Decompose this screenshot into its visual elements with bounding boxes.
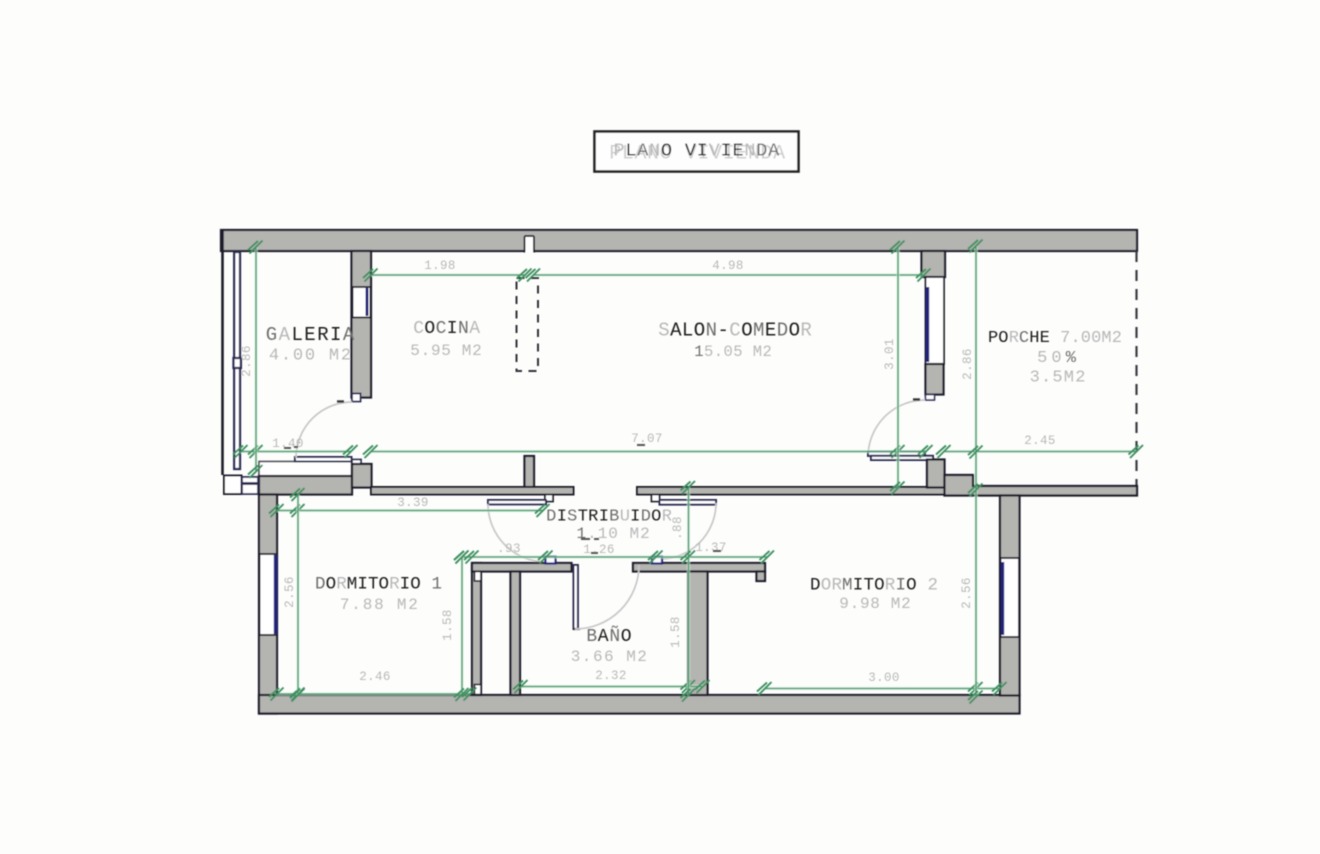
svg-text:D: D: [315, 575, 326, 595]
svg-text:D: D: [777, 320, 788, 342]
svg-text:R: R: [1009, 329, 1019, 348]
svg-text:M: M: [891, 595, 901, 613]
svg-text:R: R: [831, 576, 842, 596]
svg-text:O: O: [326, 575, 337, 595]
svg-text:A: A: [598, 627, 609, 647]
svg-text:.: .: [1070, 329, 1080, 348]
svg-text:9: 9: [839, 595, 849, 613]
svg-text:D: D: [641, 508, 651, 527]
svg-text:.: .: [421, 342, 431, 360]
svg-text:2: 2: [640, 525, 650, 543]
svg-text:I: I: [895, 576, 906, 596]
svg-text:0: 0: [293, 347, 303, 366]
svg-text:M: M: [753, 320, 764, 342]
svg-text:H: H: [1029, 329, 1039, 348]
svg-text:P: P: [988, 329, 998, 348]
svg-text:A: A: [279, 324, 291, 346]
svg-text:O: O: [694, 320, 705, 342]
svg-text:U: U: [620, 508, 630, 527]
svg-text:O: O: [661, 141, 672, 162]
svg-text:M: M: [1064, 369, 1074, 388]
svg-text:O: O: [410, 575, 421, 595]
svg-text:-: -: [717, 320, 728, 342]
svg-text:O: O: [424, 319, 435, 339]
svg-text:I: I: [330, 324, 341, 346]
svg-text:E: E: [1040, 329, 1050, 348]
svg-text:T: T: [368, 575, 379, 595]
svg-text:9: 9: [860, 595, 870, 613]
svg-text:T: T: [578, 508, 588, 527]
svg-text:3.39: 3.39: [397, 496, 429, 510]
svg-text:A: A: [343, 324, 355, 346]
svg-text:O: O: [379, 575, 390, 595]
svg-text:0: 0: [1091, 329, 1101, 348]
svg-text:I: I: [447, 319, 458, 339]
svg-text:M: M: [626, 648, 636, 666]
svg-text:I: I: [557, 508, 567, 527]
svg-text:C: C: [436, 319, 447, 339]
svg-text:5: 5: [1037, 349, 1047, 368]
svg-text:P: P: [613, 141, 624, 162]
svg-text:7: 7: [1060, 329, 1070, 348]
svg-text:8: 8: [870, 595, 880, 613]
svg-text:S: S: [658, 320, 669, 342]
svg-text:O: O: [906, 576, 917, 596]
svg-text:C: C: [1019, 329, 1029, 348]
svg-text:N: N: [458, 319, 469, 339]
svg-text:2: 2: [472, 342, 482, 360]
svg-text:8: 8: [374, 596, 384, 614]
svg-text:5: 5: [410, 342, 420, 360]
svg-text:S: S: [567, 508, 577, 527]
svg-text:2.46: 2.46: [359, 670, 391, 684]
svg-text:R: R: [885, 576, 896, 596]
svg-text:5: 5: [441, 342, 451, 360]
svg-text:.: .: [582, 648, 592, 666]
svg-text:0: 0: [305, 347, 315, 366]
svg-text:Ñ: Ñ: [609, 626, 620, 647]
svg-text:R: R: [389, 575, 400, 595]
svg-text:.: .: [1041, 369, 1051, 388]
svg-text:N: N: [649, 141, 660, 162]
svg-text:0: 0: [608, 525, 618, 543]
svg-text:I: I: [599, 508, 609, 527]
svg-text:.88: .88: [671, 516, 685, 540]
svg-text:3: 3: [571, 648, 581, 666]
svg-text:5: 5: [733, 343, 742, 361]
svg-text:2: 2: [637, 648, 647, 666]
svg-text:1.37: 1.37: [695, 541, 727, 555]
svg-text:D: D: [546, 508, 556, 527]
svg-text:L: L: [625, 141, 636, 162]
svg-text:C: C: [729, 320, 740, 342]
svg-text:E: E: [732, 141, 743, 162]
svg-text:I: I: [630, 508, 640, 527]
svg-text:%: %: [1066, 349, 1077, 368]
svg-text:R: R: [336, 575, 347, 595]
svg-text:6: 6: [604, 648, 614, 666]
svg-text:7: 7: [340, 596, 350, 614]
svg-text:.: .: [281, 347, 291, 366]
svg-text:7.07: 7.07: [631, 432, 663, 446]
svg-text:L: L: [291, 324, 302, 346]
svg-text:I: I: [721, 141, 732, 162]
svg-text:M: M: [329, 347, 339, 366]
svg-text:3.01: 3.01: [883, 338, 897, 370]
svg-text:2.32: 2.32: [595, 669, 627, 683]
svg-text:M: M: [462, 342, 472, 360]
svg-text:2: 2: [1075, 369, 1085, 388]
svg-text:A: A: [469, 319, 480, 339]
svg-text:1: 1: [576, 525, 586, 543]
svg-text:M: M: [397, 596, 407, 614]
svg-text:O: O: [874, 576, 885, 596]
svg-text:9: 9: [431, 342, 441, 360]
svg-text:0: 0: [1081, 329, 1091, 348]
svg-text:L: L: [682, 320, 693, 342]
svg-text:O: O: [651, 508, 661, 527]
svg-text:.: .: [351, 596, 361, 614]
svg-text:O: O: [621, 627, 632, 647]
svg-text:5: 5: [704, 343, 713, 361]
svg-text:2.56: 2.56: [960, 577, 974, 609]
svg-text:B: B: [609, 508, 619, 527]
svg-text:G: G: [266, 324, 277, 346]
svg-text:3.00: 3.00: [868, 671, 900, 685]
svg-text:0: 0: [723, 343, 732, 361]
svg-text:B: B: [586, 627, 597, 647]
svg-text:T: T: [863, 576, 874, 596]
svg-text:.: .: [850, 595, 860, 613]
svg-text:M: M: [753, 343, 762, 361]
svg-text:3: 3: [1030, 369, 1040, 388]
svg-text:V: V: [685, 141, 696, 162]
svg-text:A: A: [670, 320, 682, 342]
svg-text:M: M: [629, 525, 639, 543]
svg-text:I: I: [400, 575, 411, 595]
svg-text:I: I: [853, 576, 864, 596]
svg-text:M: M: [842, 576, 853, 596]
svg-text:C: C: [413, 319, 424, 339]
svg-text:2: 2: [341, 347, 351, 366]
svg-text:2.86: 2.86: [240, 345, 254, 377]
svg-text:2: 2: [1112, 329, 1122, 348]
svg-text:D: D: [810, 576, 821, 596]
svg-text:1.98: 1.98: [424, 259, 456, 273]
svg-text:D: D: [756, 141, 767, 162]
svg-text:.93: .93: [497, 542, 521, 556]
svg-text:A: A: [637, 141, 649, 162]
svg-text:5: 5: [1052, 369, 1062, 388]
svg-text:6: 6: [593, 648, 603, 666]
svg-text:O: O: [741, 320, 752, 342]
svg-text:.: .: [714, 343, 723, 361]
svg-text:N: N: [744, 141, 755, 162]
svg-text:8: 8: [363, 596, 373, 614]
svg-text:1.26: 1.26: [583, 543, 615, 557]
svg-text:O: O: [821, 576, 832, 596]
svg-text:.: .: [587, 525, 597, 543]
svg-text:1.58: 1.58: [669, 616, 683, 648]
svg-text:1: 1: [598, 525, 608, 543]
svg-text:M: M: [347, 575, 358, 595]
svg-text:O: O: [789, 320, 800, 342]
svg-text:1: 1: [694, 343, 703, 361]
svg-text:2: 2: [927, 576, 938, 596]
svg-text:R: R: [317, 324, 328, 346]
svg-text:R: R: [662, 508, 672, 527]
svg-text:I: I: [697, 141, 708, 162]
svg-text:2.45: 2.45: [1024, 434, 1056, 448]
svg-text:2: 2: [408, 596, 418, 614]
svg-text:N: N: [706, 320, 717, 342]
svg-text:1.58: 1.58: [441, 609, 455, 641]
svg-text:4: 4: [269, 347, 279, 366]
svg-text:M: M: [1101, 329, 1111, 348]
svg-text:V: V: [709, 141, 720, 162]
svg-text:0: 0: [1051, 349, 1061, 368]
svg-text:R: R: [588, 508, 598, 527]
svg-text:2.86: 2.86: [961, 348, 975, 380]
svg-text:E: E: [765, 320, 776, 342]
svg-text:I: I: [357, 575, 368, 595]
svg-text:2: 2: [901, 595, 911, 613]
svg-text:A: A: [768, 141, 780, 162]
svg-text:2.56: 2.56: [283, 576, 297, 608]
svg-text:4.98: 4.98: [712, 259, 744, 273]
svg-text:R: R: [800, 320, 811, 342]
svg-text:O: O: [998, 329, 1008, 348]
svg-text:E: E: [304, 324, 315, 346]
svg-text:1: 1: [431, 575, 442, 595]
svg-text:2: 2: [762, 343, 771, 361]
